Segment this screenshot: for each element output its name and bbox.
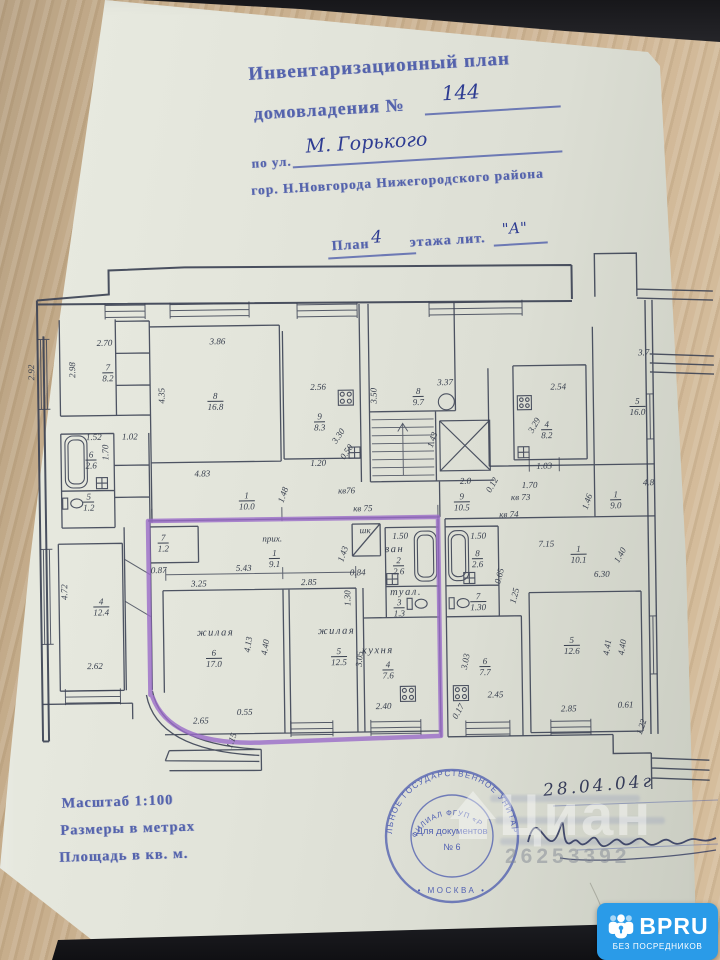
- stamp-bottom-text: • МОСКВА •: [418, 886, 487, 895]
- bpru-brand: BPRU: [639, 913, 708, 940]
- units-note: Размеры в метрах: [60, 819, 195, 840]
- area-note: Площадь в кв. м.: [59, 846, 189, 867]
- stamp-center-text: Для документов: [416, 826, 487, 837]
- photo-scene: Инвентаризационный план домовладения № 1…: [0, 0, 720, 960]
- svg-text:ЛЬНОЕ ГОСУДАРСТВЕННОЕ УНИТАРНО: ЛЬНОЕ ГОСУДАРСТВЕННОЕ УНИТАРНОЕ ПРЕДП: [368, 750, 519, 834]
- bpru-badge: BPRU БЕЗ ПОСРЕДНИКОВ: [597, 903, 718, 960]
- watermark-number: 26253392: [505, 845, 630, 869]
- stamp-ring-text: ЛЬНОЕ ГОСУДАРСТВЕННОЕ УНИТАРНОЕ ПРЕДП: [368, 750, 519, 834]
- bpru-tagline: БЕЗ ПОСРЕДНИКОВ: [613, 942, 703, 951]
- stamp-number: № 6: [443, 842, 460, 852]
- people-icon: [606, 913, 636, 941]
- round-stamp: ЛЬНОЕ ГОСУДАРСТВЕННОЕ УНИТАРНОЕ ПРЕДП ФИ…: [368, 750, 543, 925]
- scale-note: Масштаб 1:100: [61, 792, 173, 813]
